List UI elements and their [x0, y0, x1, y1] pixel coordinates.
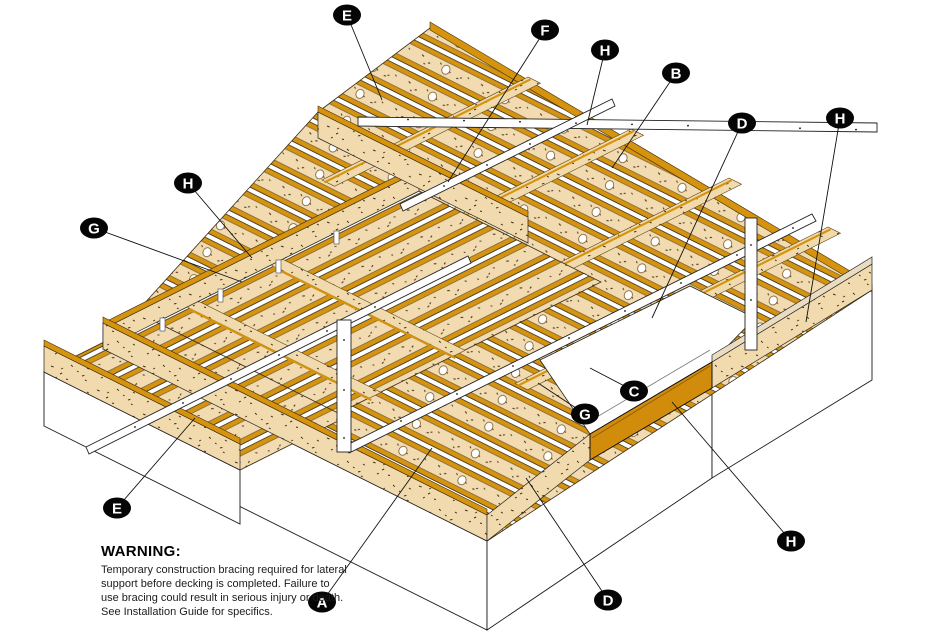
warning-note: WARNING: Temporary construction bracing … — [101, 543, 351, 619]
svg-text:B: B — [671, 66, 682, 83]
callout-h-left: H — [174, 173, 202, 194]
callout-h-top: H — [591, 40, 619, 61]
warning-line: use bracing could result in serious inju… — [101, 591, 351, 605]
svg-text:E: E — [112, 501, 122, 518]
callout-b: B — [662, 63, 690, 84]
callout-e-bottom: E — [103, 498, 131, 519]
svg-text:G: G — [88, 221, 100, 238]
svg-text:D: D — [603, 593, 614, 610]
svg-text:H: H — [835, 111, 846, 128]
svg-text:H: H — [600, 43, 611, 60]
svg-text:D: D — [737, 116, 748, 133]
svg-text:E: E — [342, 8, 352, 25]
bracing-post-right — [745, 218, 757, 350]
warning-line: Temporary construction bracing required … — [101, 563, 351, 577]
svg-text:H: H — [786, 534, 797, 551]
warning-line: See Installation Guide for specifics. — [101, 605, 351, 619]
svg-text:F: F — [540, 23, 549, 40]
callout-f: F — [531, 20, 559, 41]
callout-d-bottom: D — [594, 590, 622, 611]
callout-h-top-right: H — [826, 108, 854, 129]
callout-g-bottom: G — [571, 404, 599, 425]
svg-text:C: C — [629, 384, 640, 401]
svg-text:H: H — [183, 176, 194, 193]
warning-line: support before decking is completed. Fai… — [101, 577, 351, 591]
floor-framing-diagram: E F H B D H H G — [0, 0, 945, 636]
callout-g-left: G — [80, 218, 108, 239]
callout-d-top: D — [728, 113, 756, 134]
callout-e-top: E — [333, 5, 361, 26]
diagram-page: E F H B D H H G — [0, 0, 945, 636]
warning-title: WARNING: — [101, 543, 351, 560]
svg-text:G: G — [579, 407, 591, 424]
callout-h-bottom-right: H — [777, 531, 805, 552]
callout-c: C — [620, 381, 648, 402]
